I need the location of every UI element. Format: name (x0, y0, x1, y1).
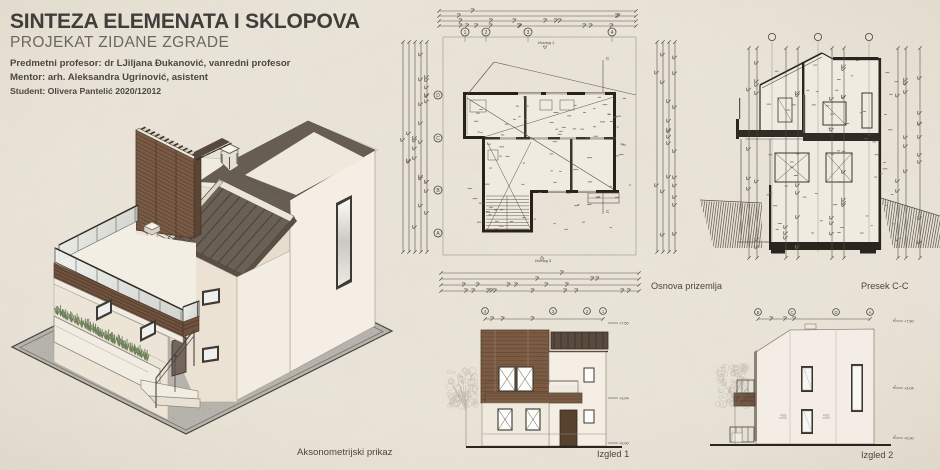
svg-text:+0.00: +0.00 (904, 437, 914, 441)
svg-text:D: D (834, 310, 837, 315)
svg-text:1: 1 (464, 30, 467, 36)
svg-text:+3.04: +3.04 (619, 397, 629, 401)
svg-text:C: C (436, 136, 440, 142)
svg-text:B: B (757, 310, 760, 315)
svg-text:Presek C-C: Presek C-C (861, 281, 909, 291)
svg-text:Aksonometrijski prikaz: Aksonometrijski prikaz (297, 447, 393, 458)
svg-text:Osnova prizemlja: Osnova prizemlja (651, 281, 723, 291)
svg-text:2: 2 (485, 30, 488, 36)
svg-text:Izgled 1: Izgled 1 (597, 449, 629, 459)
svg-text:+7.50: +7.50 (904, 320, 914, 324)
svg-text:Изглед 1: Изглед 1 (538, 40, 555, 45)
svg-text:D: D (436, 93, 440, 99)
svg-text:+3.04: +3.04 (904, 387, 914, 391)
svg-text:Izgled 2: Izgled 2 (861, 450, 893, 460)
svg-text:+0.0: +0.0 (823, 414, 830, 418)
svg-text:+0.00: +0.00 (619, 442, 629, 446)
svg-text:+0.0: +0.0 (780, 414, 787, 418)
svg-text:PROJEKAT ZIDANE ZGRADE: PROJEKAT ZIDANE ZGRADE (10, 34, 229, 51)
svg-text:4: 4 (611, 30, 614, 36)
svg-text:Student: Olivera Pantelić 202: Student: Olivera Pantelić 2020/12012 (10, 86, 161, 96)
svg-text:Mentor: arh. Aleksandra Ugrino: Mentor: arh. Aleksandra Ugrinović, asist… (10, 72, 209, 83)
svg-text:A: A (869, 310, 872, 315)
svg-text:+7.50: +7.50 (619, 322, 629, 326)
svg-text:3: 3 (527, 30, 530, 36)
svg-text:SINTEZA ELEMENATA I SKLOPOVA: SINTEZA ELEMENATA I SKLOPOVA (10, 10, 360, 33)
svg-text:C: C (790, 310, 793, 315)
svg-text:Predmetni profesor: dr LJiljan: Predmetni profesor: dr LJiljana Đukanovi… (10, 58, 291, 69)
